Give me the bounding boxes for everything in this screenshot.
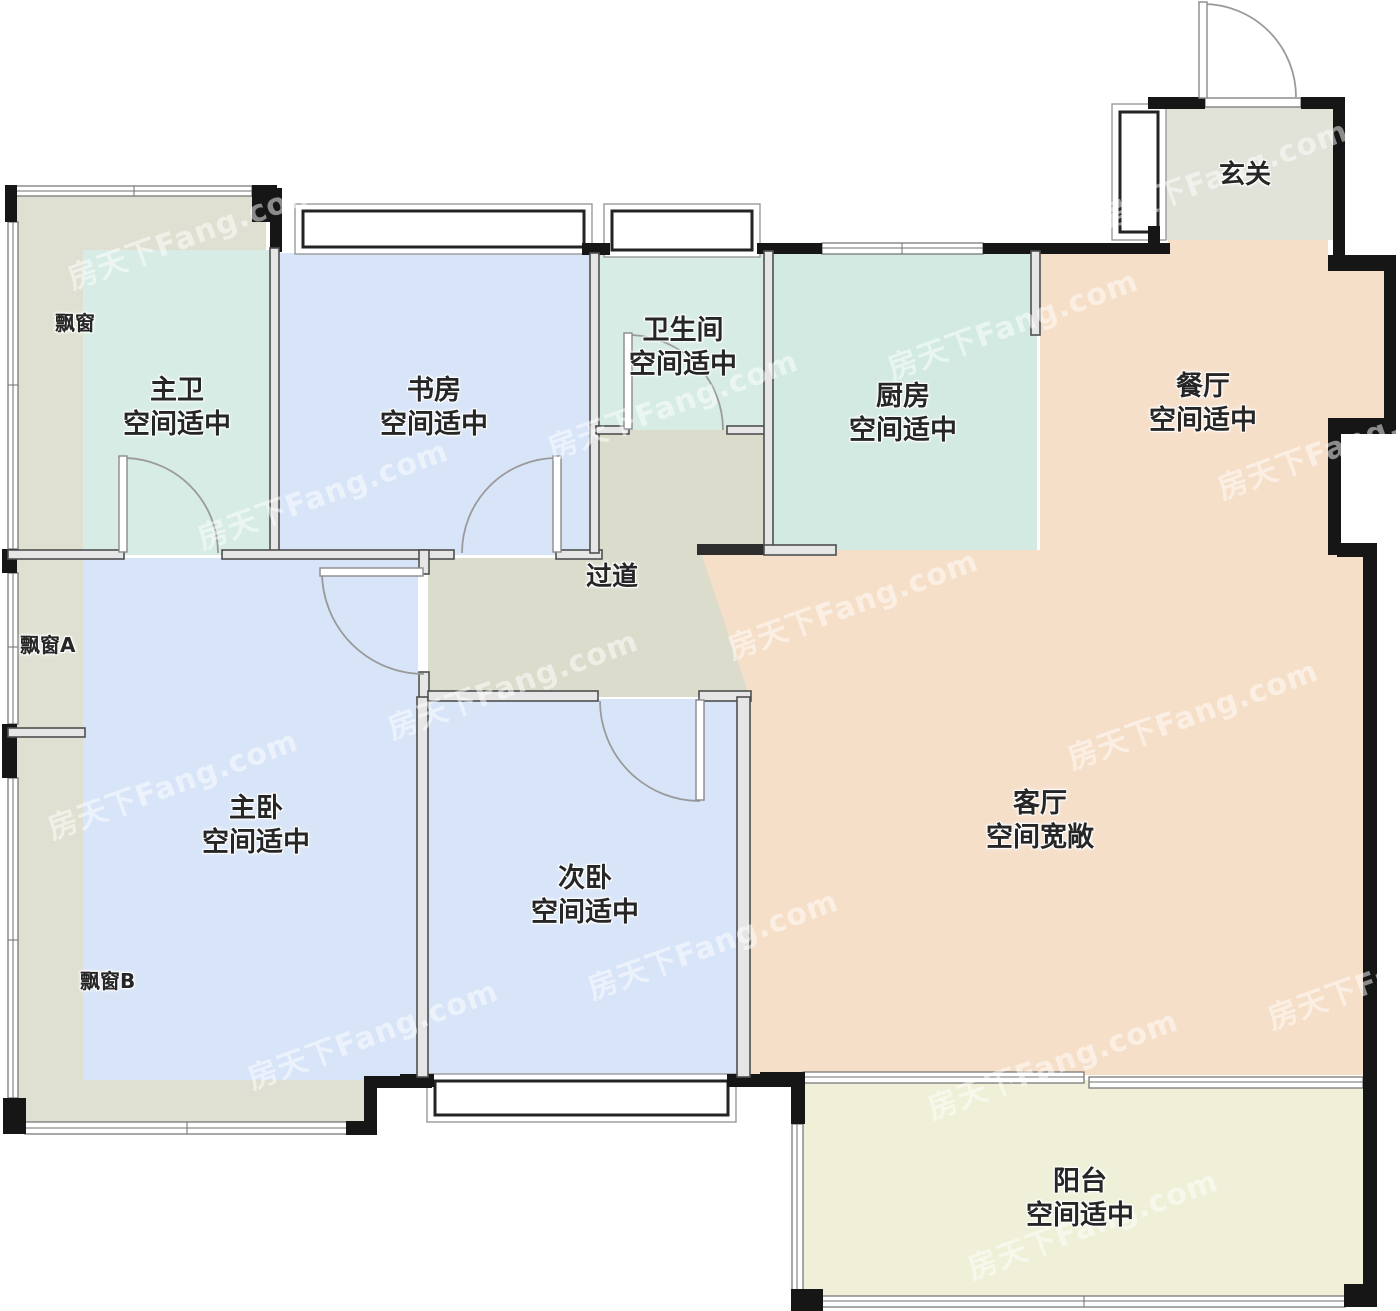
window-entry — [1120, 112, 1158, 232]
label-dining: 餐厅 空间适中 — [1083, 370, 1323, 438]
study-name: 书房 — [314, 374, 554, 408]
label-kitchen: 厨房 空间适中 — [783, 380, 1023, 448]
bay-window-a-name: 飘窗A — [20, 633, 75, 657]
second-bedroom-name: 次卧 — [465, 862, 705, 896]
master-bedroom-desc: 空间适中 — [136, 826, 376, 860]
label-master-bedroom: 主卧 空间适中 — [136, 792, 376, 860]
label-bay-window: 飘窗 — [55, 306, 175, 340]
label-balcony: 阳台 空间适中 — [960, 1165, 1200, 1233]
living-room-desc: 空间宽敞 — [920, 821, 1160, 855]
living-room-name: 客厅 — [920, 787, 1160, 821]
label-study: 书房 空间适中 — [314, 374, 554, 442]
bay-window-name: 飘窗 — [55, 311, 95, 335]
dining-desc: 空间适中 — [1083, 404, 1323, 438]
balcony-desc: 空间适中 — [960, 1199, 1200, 1233]
bathroom-name: 卫生间 — [563, 314, 803, 348]
label-bay-window-a: 飘窗A — [20, 628, 140, 662]
label-second-bedroom: 次卧 空间适中 — [465, 862, 705, 930]
study-desc: 空间适中 — [314, 408, 554, 442]
entry-name: 玄关 — [1219, 160, 1271, 190]
study-door-leaf — [553, 456, 561, 552]
bay-window-b-name: 飘窗B — [80, 969, 135, 993]
master-bath-door-leaf — [119, 456, 127, 552]
floor-plan: 房天下Fang.com 房天下Fang.com 房天下Fang.com 房天下F… — [0, 0, 1400, 1311]
master-bedroom-name: 主卧 — [136, 792, 376, 826]
kitchen-desc: 空间适中 — [783, 414, 1023, 448]
entry-door-threshold — [1205, 98, 1301, 107]
master-bath-name: 主卫 — [57, 374, 297, 408]
label-bay-window-b: 飘窗B — [80, 964, 200, 998]
kitchen-name: 厨房 — [783, 380, 1023, 414]
master-bedroom-door-leaf — [320, 568, 423, 576]
dining-name: 餐厅 — [1083, 370, 1323, 404]
floor-plan-svg — [0, 0, 1400, 1311]
window-bathroom — [612, 211, 752, 250]
label-entry: 玄关 — [1165, 158, 1325, 192]
window-second-bedroom — [435, 1081, 728, 1115]
balcony-name: 阳台 — [960, 1165, 1200, 1199]
bathroom-desc: 空间适中 — [563, 348, 803, 382]
second-bedroom-door-leaf — [696, 700, 704, 800]
master-bath-desc: 空间适中 — [57, 408, 297, 442]
entry-door-arc — [1203, 4, 1296, 97]
label-corridor: 过道 — [532, 560, 692, 594]
label-living-room: 客厅 空间宽敞 — [920, 787, 1160, 855]
window-study — [303, 211, 584, 247]
label-master-bath: 主卫 空间适中 — [57, 374, 297, 442]
entry-door-leaf — [1199, 2, 1207, 98]
second-bedroom-desc: 空间适中 — [465, 896, 705, 930]
corridor-name: 过道 — [586, 562, 638, 592]
label-bathroom: 卫生间 空间适中 — [563, 314, 803, 382]
